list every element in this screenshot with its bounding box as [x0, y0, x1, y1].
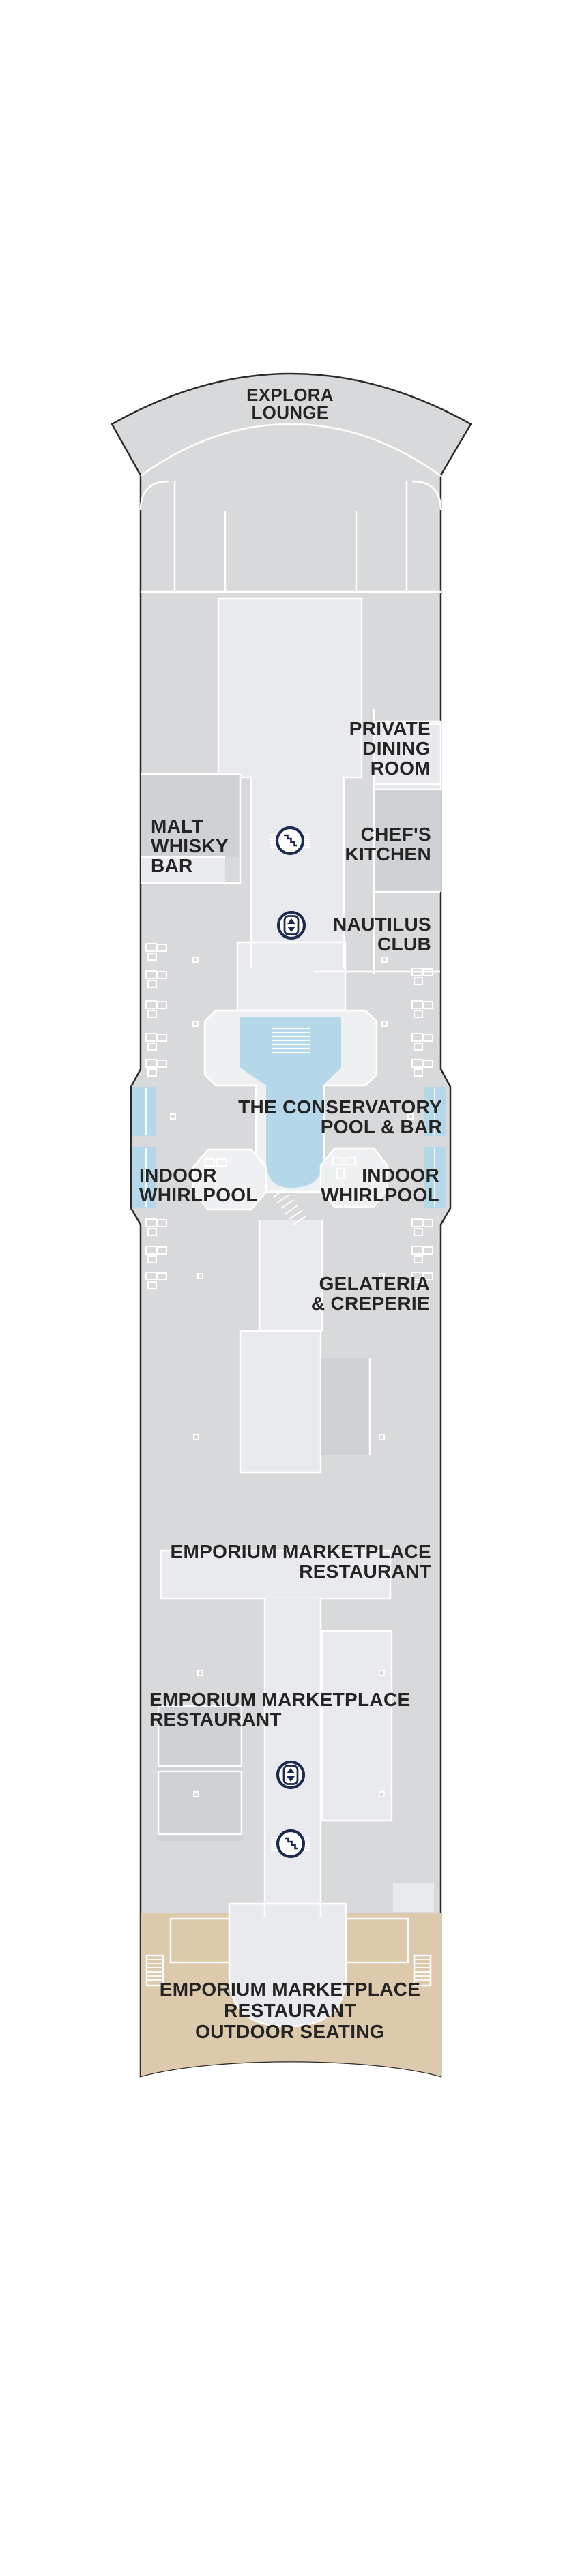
venue-label-nautilus-club: NAUTILUS CLUB [333, 914, 431, 954]
gelateria-annex [321, 1358, 370, 1455]
elevator-icon [278, 912, 304, 938]
venue-label-conservatory-pool-bar: THE CONSERVATORY POOL & BAR [238, 1097, 442, 1137]
venue-label-private-dining-room: PRIVATE DINING ROOM [349, 719, 431, 778]
venue-label-malt-whisky-bar: MALT WHISKY BAR [151, 816, 229, 875]
atrium-corridor-forward [251, 776, 344, 968]
venue-label-emporium-marketplace-upper: EMPORIUM MARKETPLACE RESTAURANT [171, 1542, 431, 1581]
deck-plan: EXPLORA LOUNGE PRIVATE DINING ROOM MALT … [0, 0, 580, 2576]
elevator-icon [278, 1762, 304, 1788]
venue-label-emporium-outdoor-seating: EMPORIUM MARKETPLACE RESTAURANT OUTDOOR … [85, 1979, 495, 2042]
explora-lounge-room [218, 599, 362, 777]
aft-corridor [265, 1598, 321, 1919]
venue-label-explora-lounge: EXPLORA LOUNGE [154, 386, 426, 421]
venue-label-gelateria-creperie: GELATERIA & CREPERIE [311, 1274, 430, 1313]
venue-label-emporium-marketplace-lower: EMPORIUM MARKETPLACE RESTAURANT [149, 1690, 410, 1729]
gelateria-room [240, 1331, 321, 1473]
venue-label-indoor-whirlpool-right: INDOOR WHIRLPOOL [321, 1165, 439, 1205]
pool-steps-lanes [272, 1028, 310, 1053]
venue-label-indoor-whirlpool-left: INDOOR WHIRLPOOL [139, 1165, 258, 1205]
venue-label-chefs-kitchen: CHEF'S KITCHEN [345, 824, 431, 864]
pool-foyer-room [237, 942, 345, 1010]
